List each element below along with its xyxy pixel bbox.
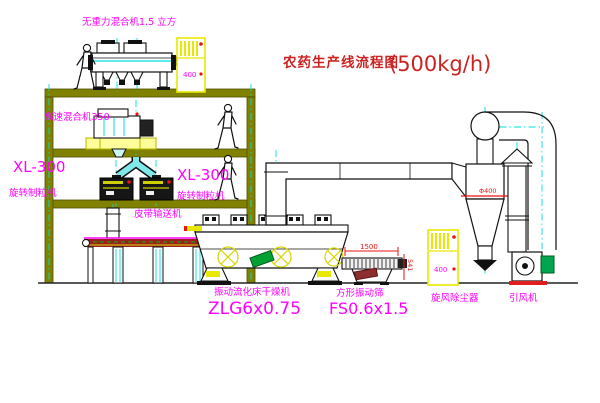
diagram-title-capacity: (500kg/h) <box>389 52 491 76</box>
induced-draft-fan <box>509 252 554 285</box>
rotary-granulator-left <box>100 175 133 200</box>
duct-elbow-joint <box>471 112 499 140</box>
label-granulator-center-name: 旋转制粒机 <box>177 190 225 202</box>
cabinet-lower-text: 400 <box>434 266 447 274</box>
control-cabinet-upper: 400 <box>177 38 205 92</box>
label-cyclone: 旋风除尘器 <box>431 292 479 304</box>
cyclone-discharge <box>473 260 497 271</box>
floor-slab-middle <box>45 149 255 157</box>
cyclone-outlet-pipe <box>477 139 493 164</box>
indicator-light <box>199 72 202 75</box>
vibrating-screen: 1500 541 <box>342 243 414 285</box>
label-screen-model: FS0.6x1.5 <box>329 299 408 318</box>
y-branch-pipe <box>118 157 154 176</box>
dryer-feed-inlet <box>186 226 202 231</box>
cad-flow-diagram: 400 <box>0 0 600 403</box>
fan-motor <box>541 256 554 273</box>
label-high-speed-mixer: 高速混合机350 <box>44 111 110 123</box>
label-belt-conveyor: 皮带输送机 <box>134 208 182 220</box>
control-cabinet-lower: 400 <box>428 230 458 285</box>
cabinet-upper-text: 400 <box>183 71 196 79</box>
fan-base <box>509 281 547 285</box>
label-vibrating-screen: 方形振动筛 <box>336 287 384 299</box>
rotary-granulator-right <box>140 175 173 200</box>
indicator-light <box>452 235 456 239</box>
screen-length-dim: 1500 <box>360 243 378 251</box>
cyclone-diameter-dim: Φ400 <box>479 187 497 195</box>
label-granulator-left-model: XL-300 <box>13 158 65 176</box>
cyclone-cone <box>466 199 504 246</box>
gravity-free-mixer <box>88 40 188 90</box>
diagram-title: 农药生产线流程图 <box>282 54 399 71</box>
indicator-light <box>452 267 455 270</box>
screen-height-dim: 541 <box>406 259 414 271</box>
floor-slab-top <box>45 89 255 97</box>
screen-motor <box>398 259 407 268</box>
label-dryer-model: ZLG6x0.75 <box>208 299 301 319</box>
cyclone-separator: Φ400 <box>452 139 509 271</box>
cyclone-inlet-transition <box>452 163 466 197</box>
worker-figure-middle <box>215 104 238 149</box>
label-gravity-mixer: 无重力混合机1.5 立方 <box>82 16 176 28</box>
indicator-light <box>199 42 203 46</box>
conveyor-legs <box>88 247 203 283</box>
label-fluid-bed-dryer: 振动流化床干燥机 <box>214 286 291 298</box>
label-fan: 引风机 <box>509 292 538 304</box>
discharge-duct <box>105 208 121 238</box>
label-granulator-center-model: XL-300 <box>177 166 229 184</box>
label-granulator-left-name: 旋转制粒机 <box>9 187 57 199</box>
diagram-canvas: 400 <box>0 0 600 403</box>
